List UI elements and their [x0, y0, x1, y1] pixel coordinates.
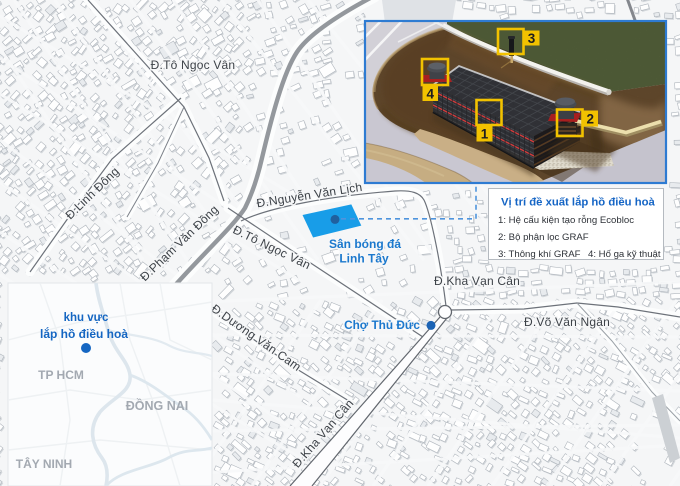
svg-text:4: Hố ga kỹ thuật: 4: Hố ga kỹ thuật — [588, 249, 661, 260]
svg-text:1: 1 — [481, 127, 489, 142]
svg-text:1: Hệ cấu kiện tạo rỗng Ecoblo: 1: Hệ cấu kiện tạo rỗng Ecobloc — [498, 215, 634, 226]
svg-text:Sân bóng đá: Sân bóng đá — [329, 237, 401, 251]
svg-text:ĐỒNG NAI: ĐỒNG NAI — [126, 398, 189, 413]
svg-text:4: 4 — [427, 87, 435, 102]
svg-text:Chợ Thủ Đức: Chợ Thủ Đức — [344, 318, 420, 332]
svg-text:2: 2 — [587, 112, 595, 127]
svg-text:Vị trí đề xuất lắp hồ điều hoà: Vị trí đề xuất lắp hồ điều hoà — [501, 196, 655, 209]
svg-text:khu vực: khu vực — [64, 312, 109, 324]
svg-text:lắp hồ điều hoà: lắp hồ điều hoà — [40, 326, 128, 341]
svg-text:2: Bộ phận lọc GRAF: 2: Bộ phận lọc GRAF — [498, 232, 589, 243]
svg-text:3: Thông khí GRAF: 3: Thông khí GRAF — [498, 249, 581, 260]
svg-text:3: 3 — [528, 31, 536, 46]
svg-text:Đ.Tô Ngọc Vân: Đ.Tô Ngọc Vân — [151, 58, 236, 72]
svg-text:TÂY NINH: TÂY NINH — [16, 456, 72, 471]
svg-text:Linh Tây: Linh Tây — [339, 252, 389, 266]
svg-text:TP HCM: TP HCM — [38, 368, 84, 382]
svg-text:Đ.Kha Vạn Cân: Đ.Kha Vạn Cân — [434, 274, 520, 288]
svg-text:Đ.Võ Văn Ngân: Đ.Võ Văn Ngân — [524, 315, 610, 329]
